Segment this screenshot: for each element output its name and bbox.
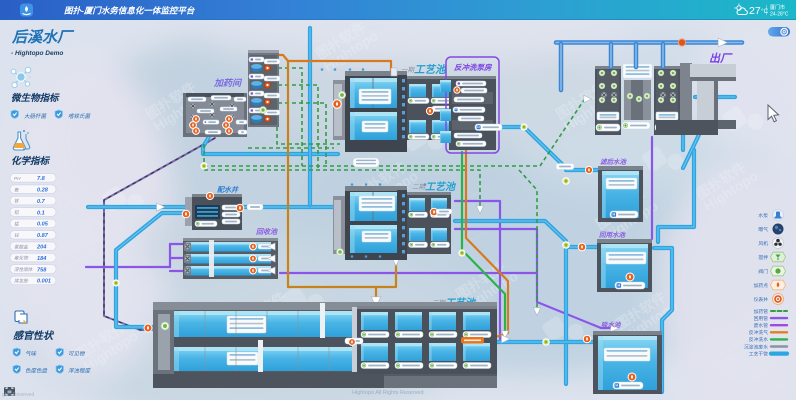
svg-text:204: 204 [36, 245, 47, 251]
svg-text:铝: 铝 [14, 210, 19, 215]
svg-text:可见物: 可见物 [68, 351, 86, 358]
svg-text:阀门: 阀门 [758, 268, 768, 275]
svg-text:氟化物: 氟化物 [14, 256, 29, 261]
svg-text:27: 27 [749, 5, 761, 17]
svg-text:色度色盘: 色度色盘 [25, 368, 49, 375]
svg-text:反冲洗泵房: 反冲洗泵房 [454, 63, 493, 72]
svg-text:反冲洗水: 反冲洗水 [749, 336, 768, 343]
svg-text:0.1: 0.1 [37, 210, 45, 216]
svg-text:工艺干管: 工艺干管 [749, 350, 768, 357]
svg-text:加药点: 加药点 [754, 282, 769, 289]
svg-text:水泵: 水泵 [758, 212, 768, 219]
svg-text:24-28°C: 24-28°C [770, 12, 789, 18]
svg-text:后溪水厂: 后溪水厂 [11, 29, 75, 46]
svg-text:工艺池: 工艺池 [425, 181, 457, 193]
svg-text:曝气: 曝气 [758, 226, 768, 233]
svg-text:浑浊程度: 浑浊程度 [68, 368, 92, 375]
svg-text:184: 184 [37, 256, 47, 262]
svg-text:工艺池: 工艺池 [414, 63, 447, 76]
svg-text:化学指标: 化学指标 [11, 155, 51, 167]
svg-text:0.87: 0.87 [37, 233, 49, 239]
svg-text:回用水池: 回用水池 [599, 231, 627, 239]
svg-text:图扑-厦门水务信息化一体监控平台: 图扑-厦门水务信息化一体监控平台 [64, 6, 195, 16]
svg-text:沉淀池废水: 沉淀池废水 [744, 343, 768, 350]
svg-text:0.001: 0.001 [37, 279, 51, 285]
svg-text:- Hightopo Demo: - Hightopo Demo [11, 50, 63, 57]
svg-text:嗜铁氏菌: 嗜铁氏菌 [68, 113, 92, 120]
svg-text:微生物指标: 微生物指标 [11, 92, 60, 104]
svg-text:758: 758 [37, 267, 47, 273]
svg-text:吸水池: 吸水池 [601, 321, 622, 329]
svg-text:回收池: 回收池 [256, 227, 278, 236]
svg-text:配水井: 配水井 [217, 185, 239, 194]
svg-text:H: H [617, 283, 620, 287]
svg-text:ghts Reserved: ghts Reserved [2, 392, 34, 398]
svg-text:感官性状: 感官性状 [13, 330, 55, 342]
svg-text:滤后水池: 滤后水池 [600, 158, 628, 166]
svg-text:大肠杆菌: 大肠杆菌 [24, 113, 48, 120]
svg-text:7.8: 7.8 [37, 176, 46, 182]
svg-text:0.05: 0.05 [37, 222, 49, 228]
svg-text:°C: °C [761, 7, 769, 15]
svg-text:挥发酚: 挥发酚 [14, 279, 29, 284]
svg-text:溶性固体: 溶性固体 [14, 267, 34, 272]
svg-text:加药间: 加药间 [213, 78, 243, 88]
svg-text:厦门市: 厦门市 [770, 4, 785, 11]
svg-text:氯酸盐: 氯酸盐 [14, 244, 28, 249]
svg-text:H: H [612, 212, 615, 216]
svg-text:0.7: 0.7 [37, 199, 46, 205]
svg-text:加药管: 加药管 [754, 308, 769, 315]
svg-text:Hightopo All Rights Reserved: Hightopo All Rights Reserved [352, 390, 424, 396]
svg-text:回用管: 回用管 [754, 315, 769, 322]
svg-text:废水管: 废水管 [754, 322, 769, 329]
svg-text:PH: PH [14, 176, 21, 181]
svg-text:搅拌: 搅拌 [758, 254, 768, 261]
svg-text:出厂: 出厂 [709, 52, 733, 65]
svg-text:气味: 气味 [25, 351, 37, 358]
svg-text:仪表井: 仪表井 [754, 296, 769, 303]
svg-text:0.28: 0.28 [37, 188, 49, 194]
svg-text:H: H [615, 383, 618, 387]
svg-text:风机: 风机 [758, 240, 768, 247]
svg-text:反冲洗气: 反冲洗气 [749, 329, 768, 336]
